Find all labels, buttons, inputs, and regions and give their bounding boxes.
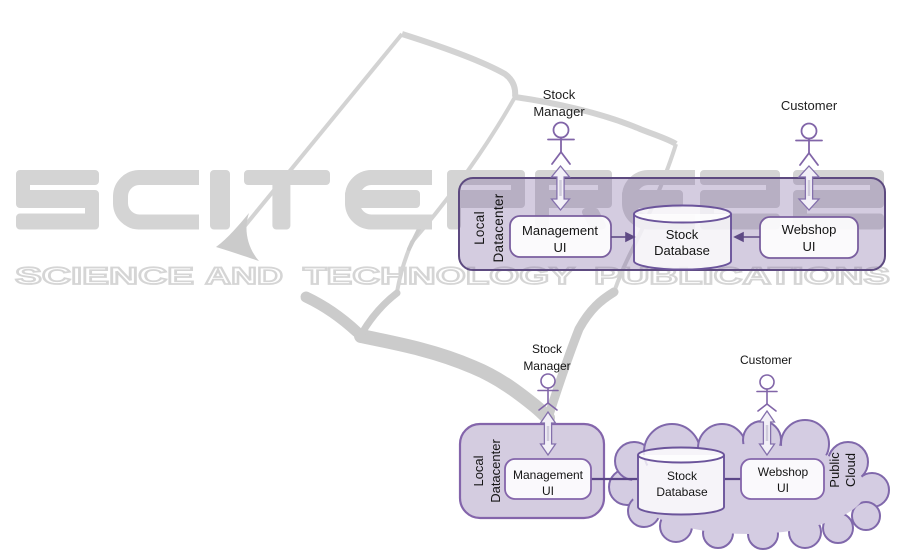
svg-text:Manager: Manager (523, 359, 570, 373)
svg-text:UI: UI (803, 239, 816, 254)
svg-text:UI: UI (777, 481, 789, 495)
svg-text:Cloud: Cloud (843, 453, 858, 487)
svg-text:SCIENCE: SCIENCE (15, 263, 194, 290)
svg-text:Stock: Stock (532, 342, 563, 356)
svg-text:Datacenter: Datacenter (488, 439, 503, 503)
svg-text:Local: Local (472, 211, 487, 245)
svg-text:Management: Management (513, 468, 584, 482)
svg-text:Database: Database (654, 243, 710, 258)
svg-text:Stock: Stock (667, 469, 698, 483)
svg-text:UI: UI (554, 240, 567, 255)
svg-text:Management: Management (522, 223, 598, 238)
svg-text:Customer: Customer (781, 98, 838, 113)
svg-text:Customer: Customer (740, 353, 792, 367)
svg-text:Public: Public (827, 452, 842, 488)
svg-text:Manager: Manager (533, 104, 585, 119)
svg-text:Database: Database (656, 485, 708, 499)
svg-text:Stock: Stock (543, 87, 576, 102)
svg-text:AND: AND (205, 263, 283, 290)
svg-text:Webshop: Webshop (782, 222, 837, 237)
svg-text:Webshop: Webshop (758, 465, 809, 479)
svg-text:Datacenter: Datacenter (491, 193, 506, 262)
svg-text:Stock: Stock (666, 227, 699, 242)
svg-text:Local: Local (471, 455, 486, 486)
svg-text:UI: UI (542, 484, 554, 498)
